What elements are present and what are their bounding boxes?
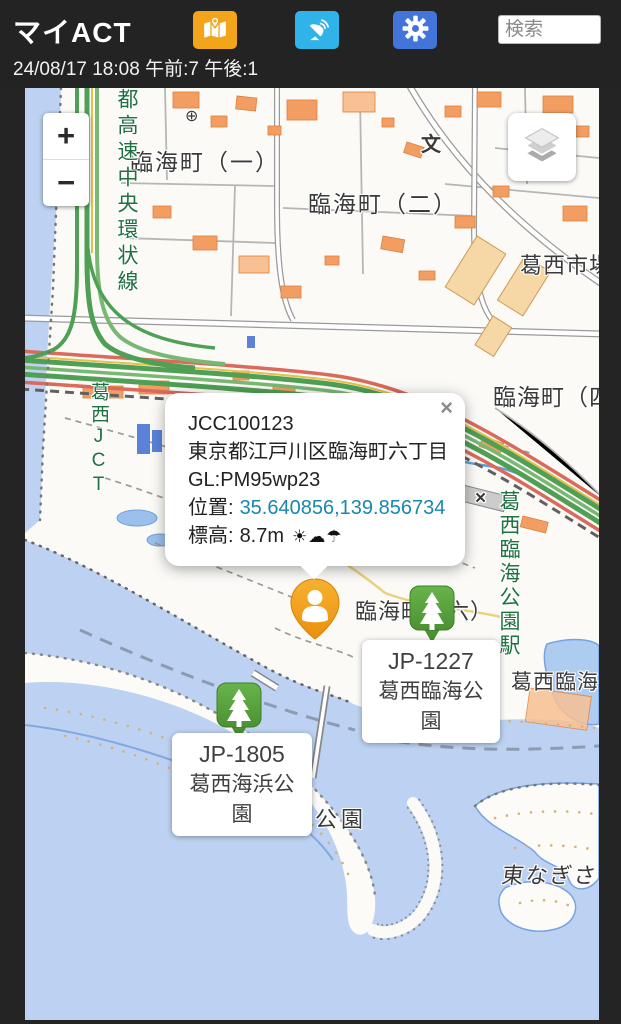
position-label: 位置: <box>188 497 234 519</box>
satellite-button[interactable] <box>295 11 339 49</box>
app-header: マイACT <box>0 0 621 88</box>
map-label-kasai-rinkai-koen: 葛西臨海公園 <box>511 666 599 696</box>
station-popup: × JCC100123 東京都江戸川区臨海町六丁目 GL:PM95wp23 位置… <box>165 393 465 566</box>
elevation-label: 標高: <box>188 525 234 547</box>
status-text: 24/08/17 18:08 午前:7 午後:1 <box>13 54 258 81</box>
close-icon[interactable]: × <box>440 395 453 421</box>
map-label-kasai-ichiba: 葛西市場 <box>520 248 599 280</box>
map-label-kasai-rinkai-koen-station: 葛西臨海公園駅 <box>493 490 523 658</box>
zoom-in-button[interactable]: + <box>43 113 89 159</box>
station-name: 葛西臨海公園 <box>372 677 490 737</box>
gear-icon <box>402 15 429 45</box>
popup-address: 東京都江戸川区臨海町六丁目 <box>188 438 465 466</box>
map-pin-icon <box>201 16 229 45</box>
popup-grid-locator: GL:PM95wp23 <box>188 466 465 494</box>
station-name: 葛西海浜公園 <box>182 770 302 830</box>
satellite-dish-icon <box>304 15 331 45</box>
health-office-symbol: ⊕ <box>185 106 198 126</box>
school-symbol: 文 <box>421 128 441 157</box>
coordinates-link[interactable]: 35.640856,139.856734 <box>240 497 446 519</box>
popup-station-id: JCC100123 <box>188 410 465 438</box>
police-symbol: × <box>475 488 486 510</box>
map-label-rinkaicho-1: 臨海町（一） <box>130 143 280 177</box>
elevation-value: 8.7m <box>240 525 284 547</box>
map-button[interactable] <box>193 11 237 49</box>
map-label-rinkaicho-2: 臨海町（二） <box>308 185 458 219</box>
zoom-control: + − <box>43 113 89 206</box>
layers-icon <box>519 122 565 173</box>
zoom-out-button[interactable]: − <box>43 159 89 206</box>
search-input[interactable] <box>498 15 601 44</box>
map-label-expressway-route: 都高速中央環状線 <box>111 88 141 296</box>
station-id: JP-1805 <box>182 739 302 770</box>
map-label-rinkaicho-4: 臨海町（四） <box>493 378 599 412</box>
popup-elevation-row: 標高:8.7m☀☁☂ <box>188 522 465 551</box>
station-id: JP-1227 <box>372 646 490 677</box>
weather-icons: ☀☁☂ <box>292 527 342 546</box>
station-label-jp1805[interactable]: JP-1805 葛西海浜公園 <box>172 733 312 836</box>
map-label-higashi-nagisa: 東なぎさ <box>500 858 599 890</box>
layers-button[interactable] <box>508 113 576 181</box>
map-label-kasai-jct: 葛西JCT <box>85 382 112 498</box>
app-title: マイACT <box>13 11 132 51</box>
user-position-marker[interactable] <box>289 577 341 646</box>
station-label-jp1227[interactable]: JP-1227 葛西臨海公園 <box>362 640 500 743</box>
map-canvas[interactable]: 臨海町（一） 臨海町（二） 葛西市場 臨海町（四） 臨海町（六） 葛西臨海公園 … <box>25 88 599 1020</box>
settings-button[interactable] <box>393 11 437 49</box>
popup-position-row: 位置:35.640856,139.856734 <box>188 494 465 522</box>
